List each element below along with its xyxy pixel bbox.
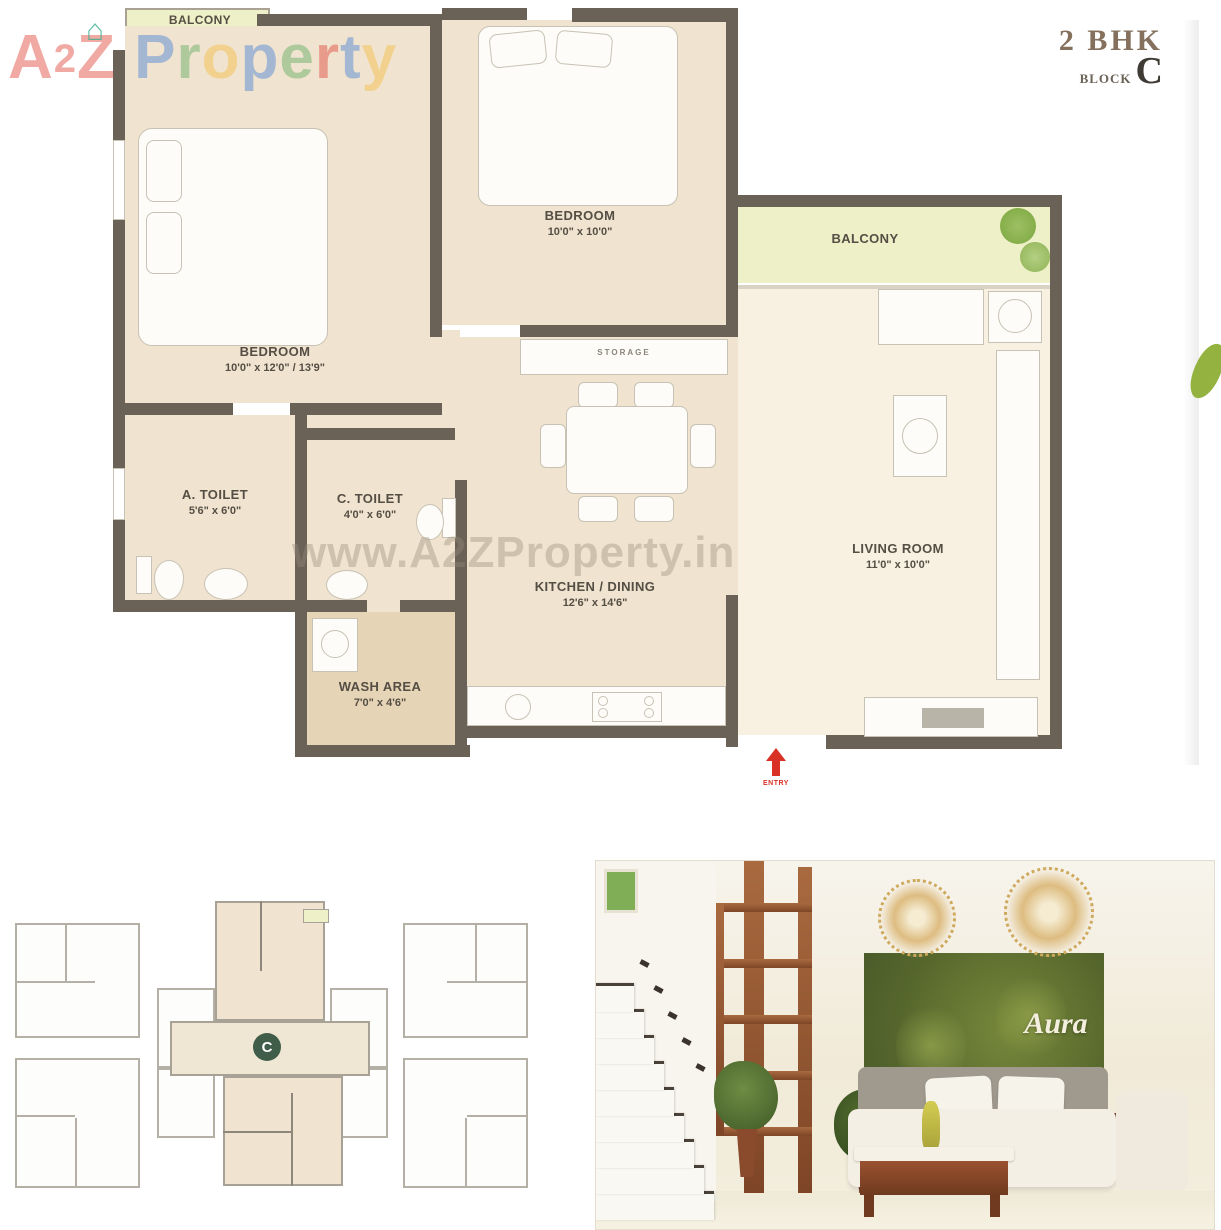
sink-icon bbox=[505, 694, 531, 720]
room-dims: 12'6" x 14'6" bbox=[495, 596, 695, 611]
wall bbox=[572, 8, 738, 22]
pillow-icon bbox=[146, 212, 182, 274]
room-name: BALCONY bbox=[790, 230, 940, 248]
entry-label: ENTRY bbox=[752, 780, 800, 787]
logo-letter: 2 bbox=[54, 37, 77, 81]
block-marker: C bbox=[253, 1033, 281, 1061]
basin-icon bbox=[998, 299, 1032, 333]
burner-icon bbox=[644, 708, 654, 718]
window bbox=[113, 468, 125, 520]
interior-photo: Aura bbox=[595, 860, 1215, 1230]
dining-chair-icon bbox=[578, 496, 618, 522]
stair-step bbox=[596, 983, 634, 1012]
burner-icon bbox=[598, 696, 608, 706]
wood-divider-shelf bbox=[716, 959, 812, 968]
stair-step bbox=[596, 1009, 644, 1038]
room-name: C. TOILET bbox=[310, 490, 430, 508]
entry-arrow-icon bbox=[772, 760, 780, 776]
wall bbox=[113, 403, 233, 415]
keyplan-balcony bbox=[303, 909, 329, 923]
storage-label: STORAGE bbox=[520, 348, 728, 357]
room-name: LIVING ROOM bbox=[818, 540, 978, 558]
keyplan-partition bbox=[15, 981, 95, 983]
wood-divider-plank bbox=[798, 867, 812, 1193]
wall bbox=[455, 480, 467, 757]
stair-step bbox=[596, 1035, 654, 1064]
tv-icon bbox=[922, 708, 984, 728]
medallion-decor-icon bbox=[878, 879, 956, 957]
room-label-bedroom-left: BEDROOM 10'0" x 12'0" / 13'9" bbox=[168, 343, 382, 377]
keyplan-partition bbox=[15, 1115, 75, 1117]
dining-chair-icon bbox=[540, 424, 566, 468]
wall bbox=[520, 325, 738, 337]
plant-icon bbox=[1000, 208, 1036, 244]
logo-letter: t bbox=[340, 23, 362, 92]
cabinet-icon bbox=[878, 289, 984, 345]
coffee-table-top bbox=[854, 1147, 1014, 1161]
room-dims: 10'0" x 12'0" / 13'9" bbox=[168, 361, 382, 376]
stair-step bbox=[596, 1139, 694, 1168]
stair-step bbox=[596, 1165, 704, 1194]
dining-chair-icon bbox=[578, 382, 618, 408]
keyplan-partition bbox=[223, 1131, 293, 1133]
plant-icon bbox=[1020, 242, 1050, 272]
aura-logo: Aura bbox=[996, 1007, 1116, 1041]
toilet-wc-icon bbox=[136, 556, 152, 594]
logo-letter: P bbox=[134, 23, 176, 92]
keyplan-partition bbox=[447, 981, 528, 983]
keyplan-unit bbox=[157, 1068, 215, 1138]
appliance-drum-icon bbox=[902, 418, 938, 454]
room-label-wash: WASH AREA 7'0" x 4'6" bbox=[310, 678, 450, 712]
room-dims: 10'0" x 10'0" bbox=[480, 225, 680, 240]
room-label-bedroom-top: BEDROOM 10'0" x 10'0" bbox=[480, 207, 680, 241]
wall bbox=[1050, 195, 1062, 749]
logo-letter: A bbox=[8, 23, 54, 92]
wall bbox=[726, 595, 738, 747]
sofa-strip-icon bbox=[996, 350, 1040, 680]
pillow-icon bbox=[146, 140, 182, 202]
dining-chair-icon bbox=[634, 382, 674, 408]
room-label-a-toilet: A. TOILET 5'6" x 6'0" bbox=[150, 486, 280, 520]
wood-divider-shelf bbox=[716, 1127, 812, 1136]
keyplan-partition bbox=[291, 1093, 293, 1186]
room-dims: 4'0" x 6'0" bbox=[310, 508, 430, 523]
coffee-table-leg bbox=[864, 1195, 874, 1217]
room-name: BEDROOM bbox=[480, 207, 680, 225]
vase-icon bbox=[922, 1101, 940, 1151]
keyplan-partition bbox=[467, 1115, 528, 1117]
key-plan: C bbox=[5, 893, 540, 1228]
wall bbox=[113, 50, 125, 612]
wall bbox=[442, 8, 527, 20]
wall bbox=[738, 195, 1062, 207]
dining-chair-icon bbox=[634, 496, 674, 522]
block-label: BLOCK bbox=[1080, 71, 1132, 87]
wardrobe-icon bbox=[520, 339, 728, 375]
house-icon: ⌂ bbox=[86, 14, 104, 48]
logo-letter: p bbox=[241, 23, 280, 92]
room-dims: 11'0" x 10'0" bbox=[818, 558, 978, 573]
keyplan-partition bbox=[465, 1118, 467, 1188]
wall bbox=[290, 403, 442, 415]
wood-divider-shelf bbox=[716, 903, 812, 912]
wall bbox=[726, 8, 738, 337]
dining-chair-icon bbox=[690, 424, 716, 468]
burner-icon bbox=[598, 708, 608, 718]
sofa-armchair bbox=[1116, 1091, 1188, 1191]
pillow-icon bbox=[555, 30, 614, 69]
medallion-decor-icon bbox=[1004, 867, 1094, 957]
logo-letter: r bbox=[177, 23, 202, 92]
logo-letter: o bbox=[202, 23, 241, 92]
room-dims: 5'6" x 6'0" bbox=[150, 504, 280, 519]
keyplan-partition bbox=[65, 923, 67, 983]
coffee-table-body bbox=[860, 1161, 1008, 1195]
wall bbox=[826, 735, 1062, 749]
wall-picture bbox=[604, 869, 638, 913]
washbasin-icon bbox=[204, 568, 248, 600]
room-label-kitchen: KITCHEN / DINING 12'6" x 14'6" bbox=[495, 578, 695, 612]
wall bbox=[307, 600, 367, 612]
stair-step bbox=[596, 1087, 674, 1116]
stair-step bbox=[596, 1061, 664, 1090]
keyplan-unit bbox=[15, 1058, 140, 1188]
brochure-page: STORAGE bbox=[0, 0, 1221, 1230]
keyplan-partition bbox=[75, 1118, 77, 1188]
plant-icon bbox=[714, 1061, 778, 1131]
room-name: KITCHEN / DINING bbox=[495, 578, 695, 596]
coffee-table-leg bbox=[990, 1195, 1000, 1217]
room-name: WASH AREA bbox=[310, 678, 450, 696]
wall bbox=[430, 14, 442, 337]
room-label-living: LIVING ROOM 11'0" x 10'0" bbox=[818, 540, 978, 574]
wall bbox=[295, 745, 470, 757]
room-name: BEDROOM bbox=[168, 343, 382, 361]
wood-divider-shelf bbox=[716, 1015, 812, 1024]
logo-letter: r bbox=[315, 23, 340, 92]
logo-letter: e bbox=[279, 23, 314, 92]
room-label-c-toilet: C. TOILET 4'0" x 6'0" bbox=[310, 490, 430, 524]
block-letter: C bbox=[1136, 54, 1163, 88]
plan-title: 2 BHK BLOCK C bbox=[1059, 24, 1163, 88]
wall bbox=[307, 428, 455, 440]
stair-step bbox=[596, 1113, 684, 1142]
washing-machine-drum-icon bbox=[321, 630, 349, 658]
floorplan: STORAGE bbox=[0, 0, 1221, 820]
wall bbox=[113, 600, 307, 612]
pillow-icon bbox=[488, 29, 547, 69]
burner-icon bbox=[644, 696, 654, 706]
stair-step bbox=[596, 1191, 714, 1220]
room-name: A. TOILET bbox=[150, 486, 280, 504]
wall bbox=[295, 415, 307, 757]
brand-logo: A2Z Property bbox=[8, 22, 397, 93]
logo-letter: y bbox=[362, 23, 397, 92]
room-dims: 7'0" x 4'6" bbox=[310, 696, 450, 711]
keyplan-partition bbox=[260, 901, 262, 971]
window bbox=[113, 140, 125, 220]
wall bbox=[455, 726, 738, 738]
room-label-balcony-right: BALCONY bbox=[790, 230, 940, 248]
watermark: www.A2ZProperty.in bbox=[292, 528, 735, 578]
keyplan-partition bbox=[475, 923, 477, 983]
dining-table-icon bbox=[566, 406, 688, 494]
